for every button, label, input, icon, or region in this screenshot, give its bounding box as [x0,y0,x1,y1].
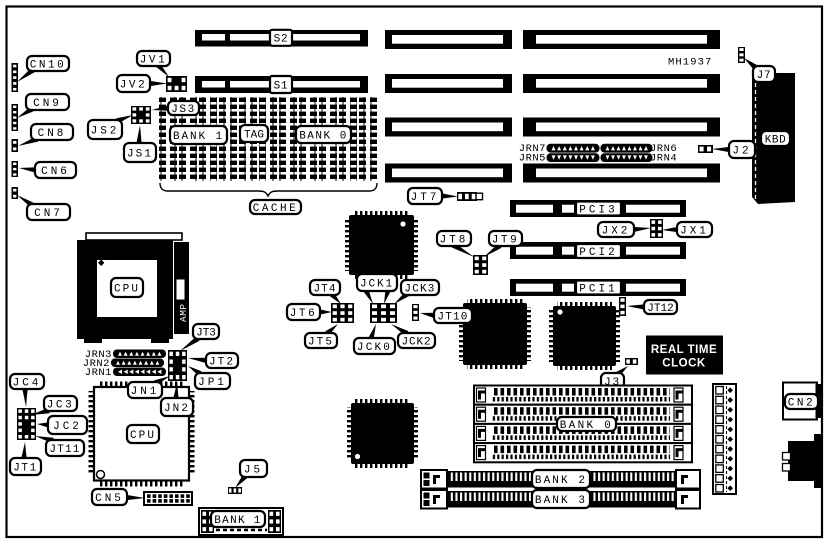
svg-text:JT8: JT8 [440,234,469,246]
svg-text:JS2: JS2 [91,125,120,137]
svg-text:JS3: JS3 [171,104,196,116]
svg-text:JCK2: JCK2 [401,336,431,348]
svg-text:JCK3: JCK3 [404,283,435,295]
svg-text:AMP: AMP [178,303,189,322]
svg-text:BANK 1: BANK 1 [214,515,261,527]
svg-text:CN10: CN10 [30,59,66,71]
svg-text:CN2: CN2 [788,397,816,409]
svg-text:JT10: JT10 [437,311,468,323]
svg-text:PCI1: PCI1 [579,283,617,295]
svg-text:CN6: CN6 [41,166,70,178]
svg-text:PCI2: PCI2 [579,247,617,259]
svg-text:REAL TIME: REAL TIME [651,344,717,356]
svg-text:BANK 0: BANK 0 [560,420,613,432]
svg-text:CPU: CPU [130,430,156,442]
svg-text:CN5: CN5 [95,493,124,505]
svg-text:CLOCK: CLOCK [662,358,706,370]
svg-text:S2: S2 [274,34,289,46]
svg-text:JC4: JC4 [13,377,42,389]
svg-text:S1: S1 [274,80,289,92]
svg-text:CPU: CPU [114,283,140,295]
svg-text:JT6: JT6 [290,308,318,320]
svg-text:JRN1: JRN1 [85,367,112,379]
svg-text:J5: J5 [244,464,263,476]
svg-text:BANK 1: BANK 1 [173,131,224,143]
svg-text:JN1: JN1 [131,386,160,398]
svg-text:JC3: JC3 [47,399,75,411]
svg-text:JT12: JT12 [647,303,673,315]
svg-text:TAG: TAG [244,129,264,141]
svg-text:CN9: CN9 [33,98,62,110]
svg-text:JRN4: JRN4 [650,153,677,165]
svg-text:JX1: JX1 [680,225,709,237]
svg-text:BANK 3: BANK 3 [535,495,587,507]
svg-text:JN2: JN2 [164,403,190,415]
svg-text:CN7: CN7 [34,208,63,220]
svg-text:JT1: JT1 [13,462,38,474]
svg-text:J2: J2 [732,145,751,157]
svg-text:JT2: JT2 [209,356,235,368]
svg-text:KBD: KBD [765,134,787,146]
svg-text:JP1: JP1 [198,377,227,389]
svg-text:BANK 0: BANK 0 [299,130,348,142]
svg-text:CN8: CN8 [38,128,67,140]
svg-text:MH1937: MH1937 [668,57,712,69]
svg-text:JV1: JV1 [140,54,168,66]
svg-text:JCK1: JCK1 [360,278,394,290]
svg-text:JS1: JS1 [127,148,153,160]
svg-text:JCK0: JCK0 [357,342,392,354]
svg-text:JC2: JC2 [53,421,82,433]
svg-text:CACHE: CACHE [253,203,299,215]
svg-text:JT5: JT5 [308,336,334,348]
svg-text:JV2: JV2 [120,79,148,91]
svg-text:J7: J7 [757,70,772,82]
svg-text:JX2: JX2 [602,225,631,237]
svg-text:BANK 2: BANK 2 [535,475,587,487]
svg-text:JT9: JT9 [492,234,520,246]
svg-text:JT7: JT7 [411,192,440,204]
svg-text:JT11: JT11 [49,444,80,456]
svg-text:JRN5: JRN5 [519,153,546,165]
svg-text:PCI3: PCI3 [579,204,617,216]
svg-text:JT3: JT3 [196,327,216,339]
svg-text:JT4: JT4 [313,283,336,295]
